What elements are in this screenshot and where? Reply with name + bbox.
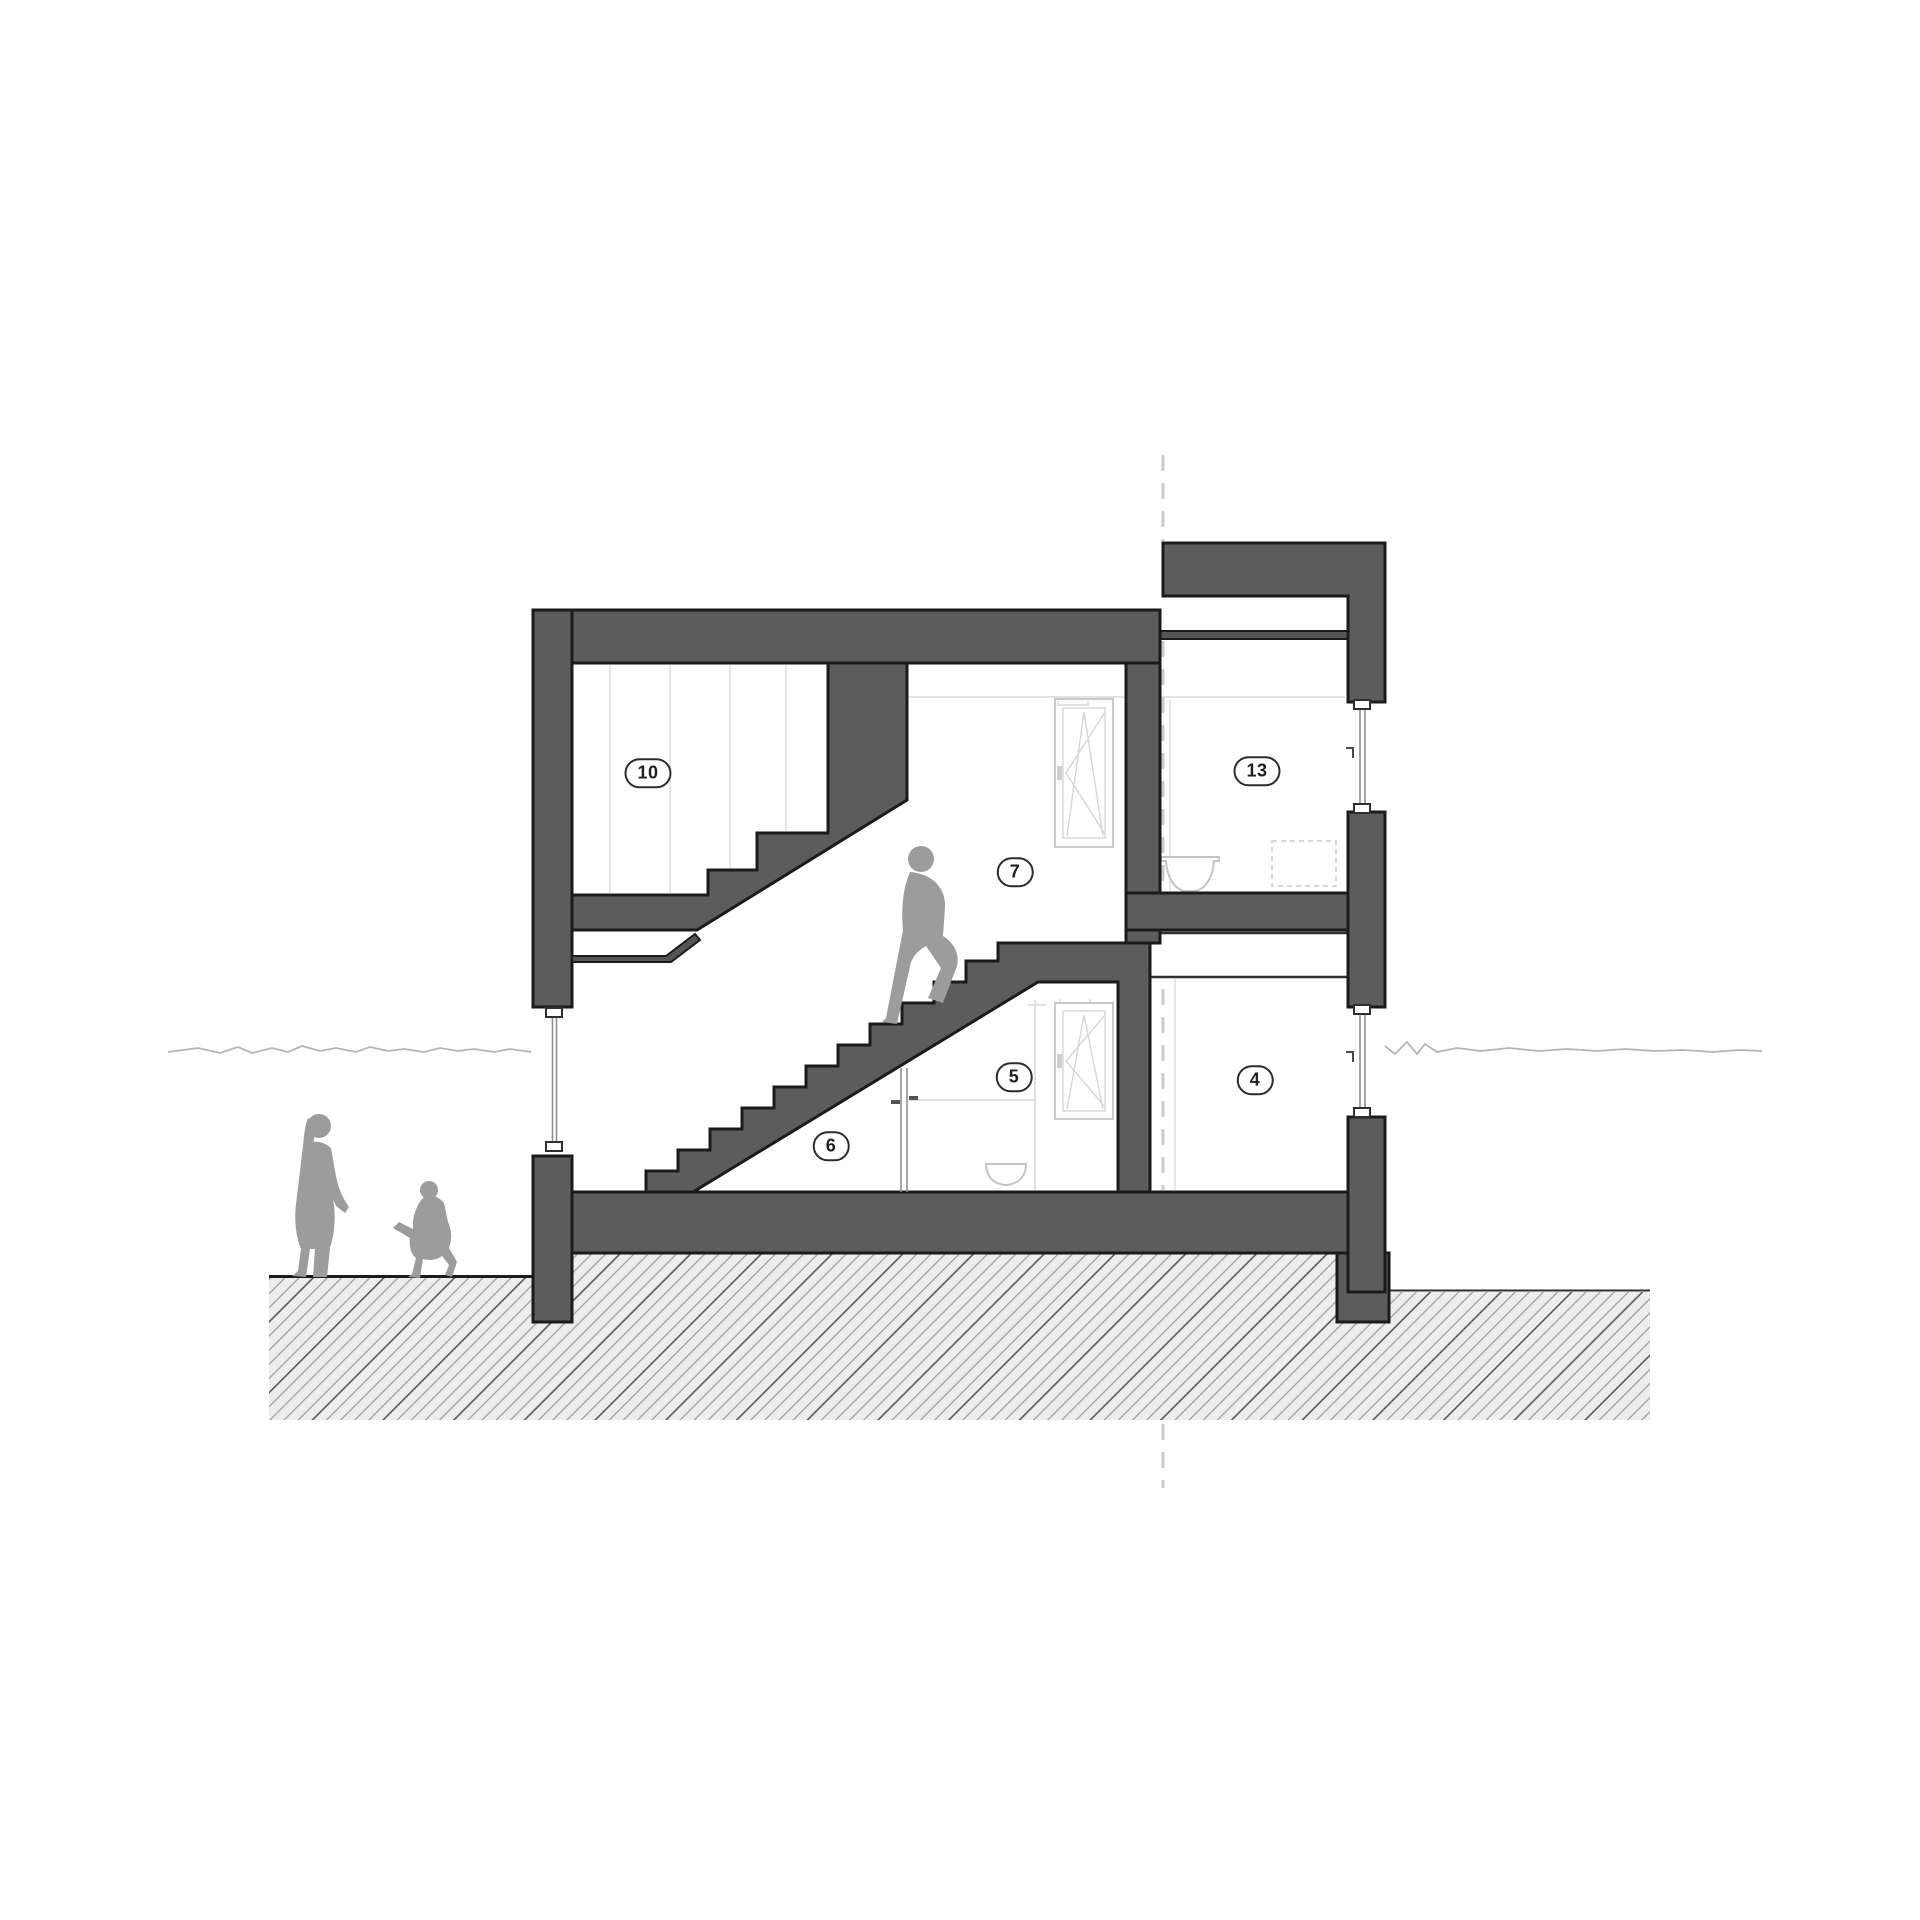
right-wall-upper bbox=[1348, 812, 1385, 1007]
child-figure bbox=[393, 1181, 457, 1278]
room-badge-10: 10 bbox=[624, 758, 671, 788]
left-plinth-foundation bbox=[533, 1156, 572, 1322]
toilet bbox=[986, 1164, 1026, 1185]
room-badge-7: 7 bbox=[997, 857, 1034, 887]
ground-hatch bbox=[269, 1253, 1650, 1420]
room-badge-5: 5 bbox=[996, 1062, 1033, 1092]
woman-figure bbox=[292, 1114, 349, 1277]
slab-rooms13-4 bbox=[1126, 893, 1348, 930]
shower-dashed-outline bbox=[1272, 841, 1336, 886]
floor-band-rooms13-4 bbox=[1150, 933, 1348, 977]
right-wall-window-room4 bbox=[1346, 1005, 1370, 1117]
right-wall-lower bbox=[1348, 1117, 1385, 1292]
left-datum-squiggle bbox=[168, 1046, 531, 1053]
upper-stair-mass-and-wall bbox=[572, 663, 907, 930]
window-room7 bbox=[1055, 699, 1113, 847]
left-wall bbox=[533, 610, 572, 1007]
ground-floor-slab bbox=[572, 1192, 1385, 1253]
section-drawing bbox=[0, 0, 1920, 1920]
room-badge-13: 13 bbox=[1233, 756, 1280, 786]
ground-datum-lines bbox=[168, 1042, 1762, 1054]
room-badge-4: 4 bbox=[1237, 1065, 1274, 1095]
right-wall-window-room13 bbox=[1346, 700, 1370, 813]
roof-slab bbox=[533, 610, 1160, 663]
left-wall-glazing bbox=[546, 1008, 562, 1151]
door-under-stair bbox=[891, 1068, 918, 1192]
window-room5 bbox=[1055, 999, 1113, 1119]
bathroom-fixtures-room13 bbox=[1161, 841, 1336, 891]
roof-parapet-tower bbox=[1163, 543, 1385, 702]
section-drawing-canvas: 10 7 13 5 4 6 bbox=[0, 0, 1920, 1920]
room-badge-6: 6 bbox=[813, 1131, 850, 1161]
landing-soffit-strip bbox=[572, 934, 700, 962]
right-datum-squiggle bbox=[1385, 1042, 1762, 1054]
thin-slab-room13-ceiling bbox=[1155, 631, 1348, 639]
